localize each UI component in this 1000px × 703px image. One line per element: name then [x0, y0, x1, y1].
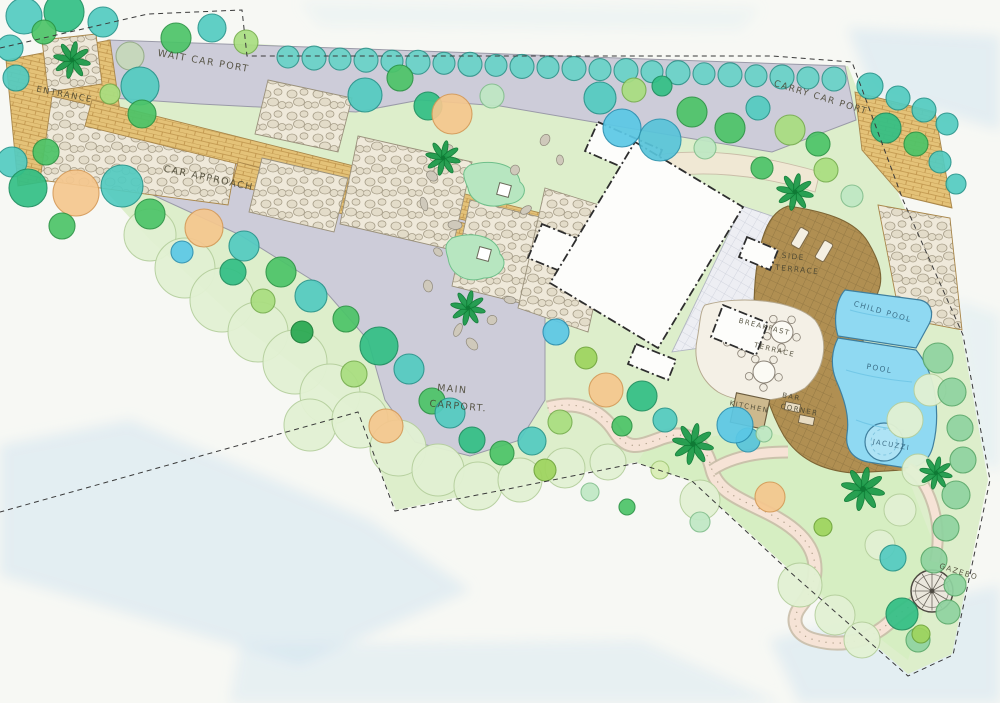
tree-canopy	[185, 209, 223, 247]
tree-canopy	[394, 354, 424, 384]
tree-canopy	[841, 185, 863, 207]
tree-canopy	[619, 499, 635, 515]
tree-canopy	[746, 96, 770, 120]
shrub-cloud	[884, 494, 916, 526]
tree-canopy	[715, 113, 745, 143]
tree-canopy	[806, 132, 830, 156]
tree-canopy	[581, 483, 599, 501]
tree-canopy	[490, 441, 514, 465]
tree-canopy	[756, 426, 772, 442]
tree-canopy	[912, 98, 936, 122]
hedge-shrub	[510, 54, 534, 78]
tree-canopy	[49, 213, 75, 239]
tree-canopy	[480, 84, 504, 108]
tree-canopy	[857, 73, 883, 99]
tree-canopy	[886, 598, 918, 630]
tree-canopy	[220, 259, 246, 285]
tree-canopy	[266, 257, 296, 287]
tree-canopy	[814, 518, 832, 536]
hedge-shrub	[693, 63, 715, 85]
tree-canopy	[128, 100, 156, 128]
hedge-shrub	[589, 59, 611, 81]
plan-drawing: WAIT CAR PORT ENTRANCE CAR APPROACH CARR…	[0, 0, 1000, 703]
hedge-shrub	[947, 415, 973, 441]
tree-canopy	[198, 14, 226, 42]
tree-canopy	[9, 169, 47, 207]
hedge-shrub	[933, 515, 959, 541]
tree-canopy	[694, 137, 716, 159]
tree-canopy	[459, 427, 485, 453]
tree-canopy	[603, 109, 641, 147]
hedge-shrub	[562, 57, 586, 81]
tree-canopy	[53, 170, 99, 216]
tree-canopy	[677, 97, 707, 127]
tree-canopy	[291, 321, 313, 343]
tree-canopy	[871, 113, 901, 143]
tree-canopy	[32, 20, 56, 44]
tree-canopy	[775, 115, 805, 145]
tree-canopy	[100, 84, 120, 104]
tree-canopy	[333, 306, 359, 332]
tree-canopy	[0, 35, 23, 61]
shrub-cloud	[590, 444, 626, 480]
tree-canopy	[690, 512, 710, 532]
tree-canopy	[543, 319, 569, 345]
tree-canopy	[584, 82, 616, 114]
tree-canopy	[548, 410, 572, 434]
tree-canopy	[295, 280, 327, 312]
shrub-cloud	[454, 462, 502, 510]
hedge-shrub	[354, 48, 378, 72]
tree-canopy	[929, 151, 951, 173]
shrub-cloud	[887, 402, 923, 438]
tree-canopy	[627, 381, 657, 411]
tree-canopy	[387, 65, 413, 91]
shrub-cloud	[778, 563, 822, 607]
hedge-shrub	[277, 46, 299, 68]
tree-canopy	[518, 427, 546, 455]
tree-canopy	[653, 408, 677, 432]
hedge-shrub	[485, 54, 507, 76]
hedge-shrub	[923, 343, 953, 373]
tree-canopy	[234, 30, 258, 54]
tree-canopy	[912, 625, 930, 643]
hedge-shrub	[718, 63, 742, 87]
tree-canopy	[886, 86, 910, 110]
tree-canopy	[33, 139, 59, 165]
tree-canopy	[135, 199, 165, 229]
tree-canopy	[432, 94, 472, 134]
tree-canopy	[651, 461, 669, 479]
tree-canopy	[171, 241, 193, 263]
tree-canopy	[622, 78, 646, 102]
tree-canopy	[534, 459, 556, 481]
hedge-shrub	[938, 378, 966, 406]
hedge-shrub	[302, 46, 326, 70]
tree-canopy	[121, 67, 159, 105]
tree-canopy	[652, 76, 672, 96]
tree-canopy	[717, 407, 753, 443]
tree-canopy	[751, 157, 773, 179]
tree-canopy	[88, 7, 118, 37]
tree-canopy	[589, 373, 623, 407]
tree-canopy	[341, 361, 367, 387]
tree-canopy	[936, 113, 958, 135]
tree-canopy	[575, 347, 597, 369]
tree-canopy	[639, 119, 681, 161]
hedge-shrub	[942, 481, 970, 509]
tree-canopy	[348, 78, 382, 112]
tree-canopy	[101, 165, 143, 207]
shrub-cloud	[844, 622, 880, 658]
tree-canopy	[3, 65, 29, 91]
shrub-cloud	[284, 399, 336, 451]
tree-canopy	[880, 545, 906, 571]
tree-canopy	[755, 482, 785, 512]
tree-canopy	[229, 231, 259, 261]
tree-canopy	[251, 289, 275, 313]
hedge-shrub	[822, 67, 846, 91]
tree-canopy	[904, 132, 928, 156]
tree-canopy	[612, 416, 632, 436]
landscape-plan-canvas: WAIT CAR PORT ENTRANCE CAR APPROACH CARR…	[0, 0, 1000, 703]
tree-canopy	[814, 158, 838, 182]
tree-canopy	[369, 409, 403, 443]
hedge-shrub	[950, 447, 976, 473]
hedge-shrub	[329, 48, 351, 70]
tree-canopy	[360, 327, 398, 365]
tree-canopy	[946, 174, 966, 194]
hedge-shrub	[936, 600, 960, 624]
tree-canopy	[116, 42, 144, 70]
hedge-shrub	[745, 65, 767, 87]
hedge-shrub	[537, 56, 559, 78]
